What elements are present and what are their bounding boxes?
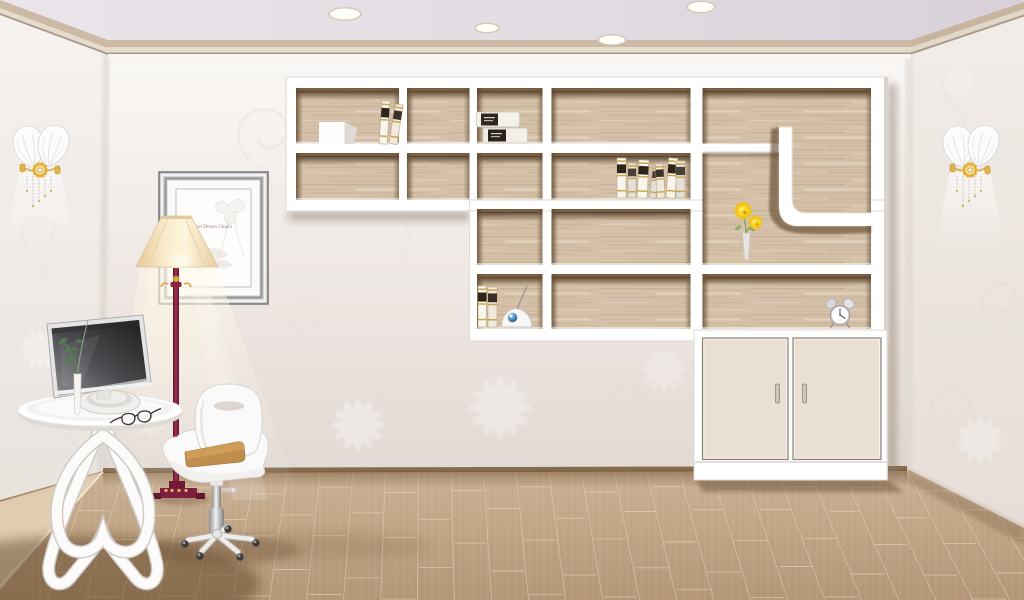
- svg-text:real Dream Utopia: real Dream Utopia: [194, 225, 232, 230]
